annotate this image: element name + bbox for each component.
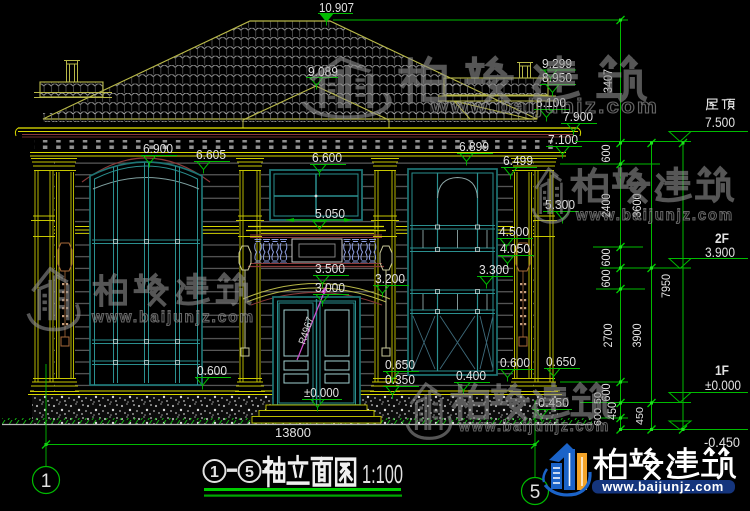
svg-text:5: 5 bbox=[245, 464, 254, 481]
svg-text:3900: 3900 bbox=[630, 323, 644, 347]
svg-text:0.650: 0.650 bbox=[385, 358, 415, 372]
svg-text:5: 5 bbox=[530, 482, 541, 503]
svg-text:6.600: 6.600 bbox=[312, 151, 342, 165]
svg-text:7.500: 7.500 bbox=[705, 115, 735, 130]
svg-text:6.499: 6.499 bbox=[503, 154, 533, 168]
svg-text:±0.000: ±0.000 bbox=[304, 386, 339, 400]
svg-text:2700: 2700 bbox=[601, 323, 615, 347]
svg-text:4.050: 4.050 bbox=[500, 242, 530, 256]
svg-text:1:100: 1:100 bbox=[362, 459, 403, 489]
svg-text:6.605: 6.605 bbox=[196, 148, 226, 162]
svg-text:3.500: 3.500 bbox=[315, 262, 345, 276]
svg-text:1: 1 bbox=[210, 464, 219, 481]
svg-text:www.baijunjz.com: www.baijunjz.com bbox=[575, 207, 734, 224]
svg-text:6.900: 6.900 bbox=[143, 142, 173, 156]
svg-text:0.350: 0.350 bbox=[385, 373, 415, 387]
svg-text:3.300: 3.300 bbox=[479, 263, 509, 277]
svg-text:www.baijunjz.com: www.baijunjz.com bbox=[601, 479, 724, 494]
svg-text:5.050: 5.050 bbox=[315, 207, 345, 221]
svg-text:www.baijunjz.com: www.baijunjz.com bbox=[458, 418, 610, 435]
svg-text:1F: 1F bbox=[715, 363, 729, 378]
svg-text:www.baijunjz.com: www.baijunjz.com bbox=[430, 96, 659, 118]
svg-text:3.000: 3.000 bbox=[315, 281, 345, 295]
svg-text:7.100: 7.100 bbox=[548, 133, 578, 147]
svg-text:600: 600 bbox=[599, 269, 613, 287]
svg-text:3.900: 3.900 bbox=[705, 245, 735, 260]
svg-text:600: 600 bbox=[599, 144, 613, 162]
svg-text:7950: 7950 bbox=[659, 274, 673, 298]
svg-text:±0.000: ±0.000 bbox=[705, 378, 741, 393]
svg-text:600: 600 bbox=[599, 248, 613, 266]
svg-text:2F: 2F bbox=[715, 231, 729, 246]
svg-text:4.500: 4.500 bbox=[499, 225, 529, 239]
svg-text:450: 450 bbox=[635, 407, 646, 425]
svg-text:0.600: 0.600 bbox=[500, 356, 530, 370]
svg-text:0.650: 0.650 bbox=[546, 355, 576, 369]
svg-text:13800: 13800 bbox=[275, 426, 311, 440]
svg-text:0.400: 0.400 bbox=[456, 369, 486, 383]
svg-text:www.baijunjz.com: www.baijunjz.com bbox=[91, 309, 255, 326]
svg-text:0.600: 0.600 bbox=[197, 364, 227, 378]
svg-text:6.899: 6.899 bbox=[459, 140, 489, 154]
svg-text:1: 1 bbox=[41, 471, 52, 492]
svg-text:10.907: 10.907 bbox=[319, 1, 354, 15]
svg-text:3.200: 3.200 bbox=[375, 272, 405, 286]
